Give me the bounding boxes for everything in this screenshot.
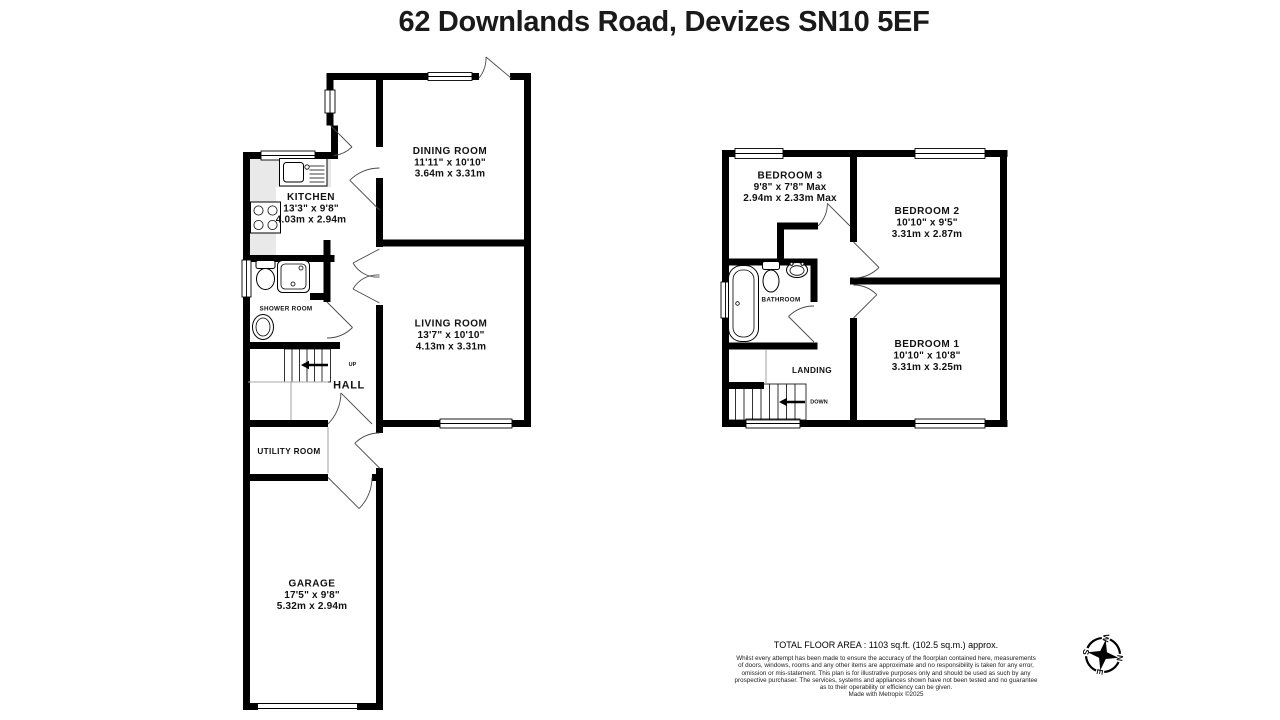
room-label-kitchen: KITCHEN 13'3" x 9'8" 4.03m x 2.94m: [276, 192, 346, 226]
room-label-utility: UTILITY ROOM: [257, 447, 320, 456]
bedroom2-metric: 3.31m x 2.87m: [892, 229, 962, 240]
bedroom3-window: [735, 149, 783, 159]
bedroom2-name: BEDROOM 2: [894, 206, 959, 217]
kitchen-imperial: 13'3" x 9'8": [283, 204, 339, 215]
first-floor-plan: BEDROOM 3 9'8" x 7'8" Max 2.94m x 2.33m …: [721, 149, 1008, 429]
bedroom3-door: [818, 203, 850, 226]
living-name: LIVING ROOM: [415, 319, 488, 330]
metropix-credit: Made with Metropix ©2025: [734, 691, 1037, 698]
living-room-window: [440, 419, 512, 428]
dining-metric: 3.64m x 3.31m: [415, 169, 485, 180]
living-room-double-door: [353, 249, 380, 303]
stairs-up-label: UP: [349, 362, 357, 368]
kitchen-metric: 4.03m x 2.94m: [276, 215, 346, 226]
kitchen-name: KITCHEN: [287, 192, 335, 203]
entry-side-window: [325, 90, 335, 113]
compass-s: S: [1081, 648, 1092, 656]
bedroom1-imperial: 10'10" x 10'8": [893, 351, 960, 362]
garage-inner-door: [328, 478, 372, 509]
floorplan-page: 62 Downlands Road, Devizes SN10 5EF: [0, 0, 1280, 720]
total-floor-area: TOTAL FLOOR AREA : 1103 sq.ft. (102.5 sq…: [774, 640, 998, 650]
shower-room-window: [242, 260, 251, 297]
bedroom1-door: [854, 285, 877, 318]
garage-name: GARAGE: [289, 579, 336, 590]
compass-e: E: [1095, 668, 1106, 676]
room-label-bedroom1: BEDROOM 1 10'10" x 10'8" 3.31m x 3.25m: [892, 339, 962, 373]
shower-icon: [278, 261, 310, 293]
garage-metric: 5.32m x 2.94m: [277, 601, 347, 612]
room-label-landing: LANDING: [792, 366, 832, 375]
bedroom1-metric: 3.31m x 3.25m: [892, 362, 962, 373]
dining-window: [428, 73, 472, 81]
front-door: [355, 433, 380, 468]
hall-utility-door: [328, 393, 372, 424]
garage-imperial: 17'5" x 9'8": [284, 590, 340, 601]
room-label-living: LIVING ROOM 13'7" x 10'10" 4.13m x 3.31m: [415, 319, 488, 353]
bedroom2-imperial: 10'10" x 9'5": [896, 218, 957, 229]
disclaimer: Whilst every attempt has been made to en…: [734, 655, 1037, 699]
bedroom3-imperial: 9'8" x 7'8" Max: [754, 182, 827, 193]
bedroom3-name: BEDROOM 3: [757, 171, 822, 182]
ground-floor-plan: DINING ROOM 11'11" x 10'10" 3.64m x 3.31…: [242, 57, 531, 710]
sink-icon: [280, 159, 328, 187]
room-label-bedroom3: BEDROOM 3 9'8" x 7'8" Max 2.94m x 2.33m …: [743, 171, 837, 205]
room-label-bathroom: BATHROOM: [761, 297, 800, 304]
bedroom1-name: BEDROOM 1: [894, 339, 959, 350]
room-label-bedroom2: BEDROOM 2 10'10" x 9'5" 3.31m x 2.87m: [892, 206, 962, 240]
stairs-ground: [248, 349, 331, 420]
living-metric: 4.13m x 3.31m: [416, 342, 486, 353]
bedroom2-window: [915, 149, 985, 159]
toilet-icon-ground: [256, 261, 275, 290]
compass-n: N: [1114, 654, 1125, 662]
bathroom-door: [789, 306, 815, 342]
dining-inner-door: [350, 168, 380, 210]
bedroom3-metric: 2.94m x 2.33m Max: [743, 193, 837, 204]
disclaimer-line: prospective purchaser. The services, sys…: [734, 677, 1037, 684]
stairs-down-label: DOWN: [810, 400, 827, 406]
toilet-icon-first: [763, 262, 780, 293]
room-label-hall: HALL: [333, 380, 365, 392]
dining-french-door: [479, 57, 511, 78]
room-label-garage: GARAGE 17'5" x 9'8" 5.32m x 2.94m: [277, 579, 347, 613]
floorplan-canvas: DINING ROOM 11'11" x 10'10" 3.64m x 3.31…: [0, 0, 1280, 720]
compass-icon: N E S W: [1078, 630, 1129, 679]
dining-imperial: 11'11" x 10'10": [414, 158, 486, 169]
living-imperial: 13'7" x 10'10": [417, 330, 484, 341]
shower-room-door: [327, 302, 353, 338]
disclaimer-line: Whilst every attempt has been made to en…: [734, 655, 1037, 662]
disclaimer-line: of doors, windows, rooms and any other i…: [734, 662, 1037, 669]
dining-name: DINING ROOM: [413, 146, 487, 157]
garage-door: [258, 704, 357, 709]
room-label-dining: DINING ROOM 11'11" x 10'10" 3.64m x 3.31…: [413, 146, 487, 180]
room-label-shower: SHOWER ROOM: [260, 306, 313, 313]
disclaimer-line: omission or mis-statement. This plan is …: [734, 670, 1037, 677]
bath-icon: [729, 266, 759, 342]
basin-icon-first: [787, 262, 808, 277]
bedroom1-window: [915, 419, 985, 428]
bedroom2-door: [854, 242, 880, 278]
ground-floor-doors: [327, 57, 511, 509]
basin-icon-ground: [253, 315, 274, 340]
